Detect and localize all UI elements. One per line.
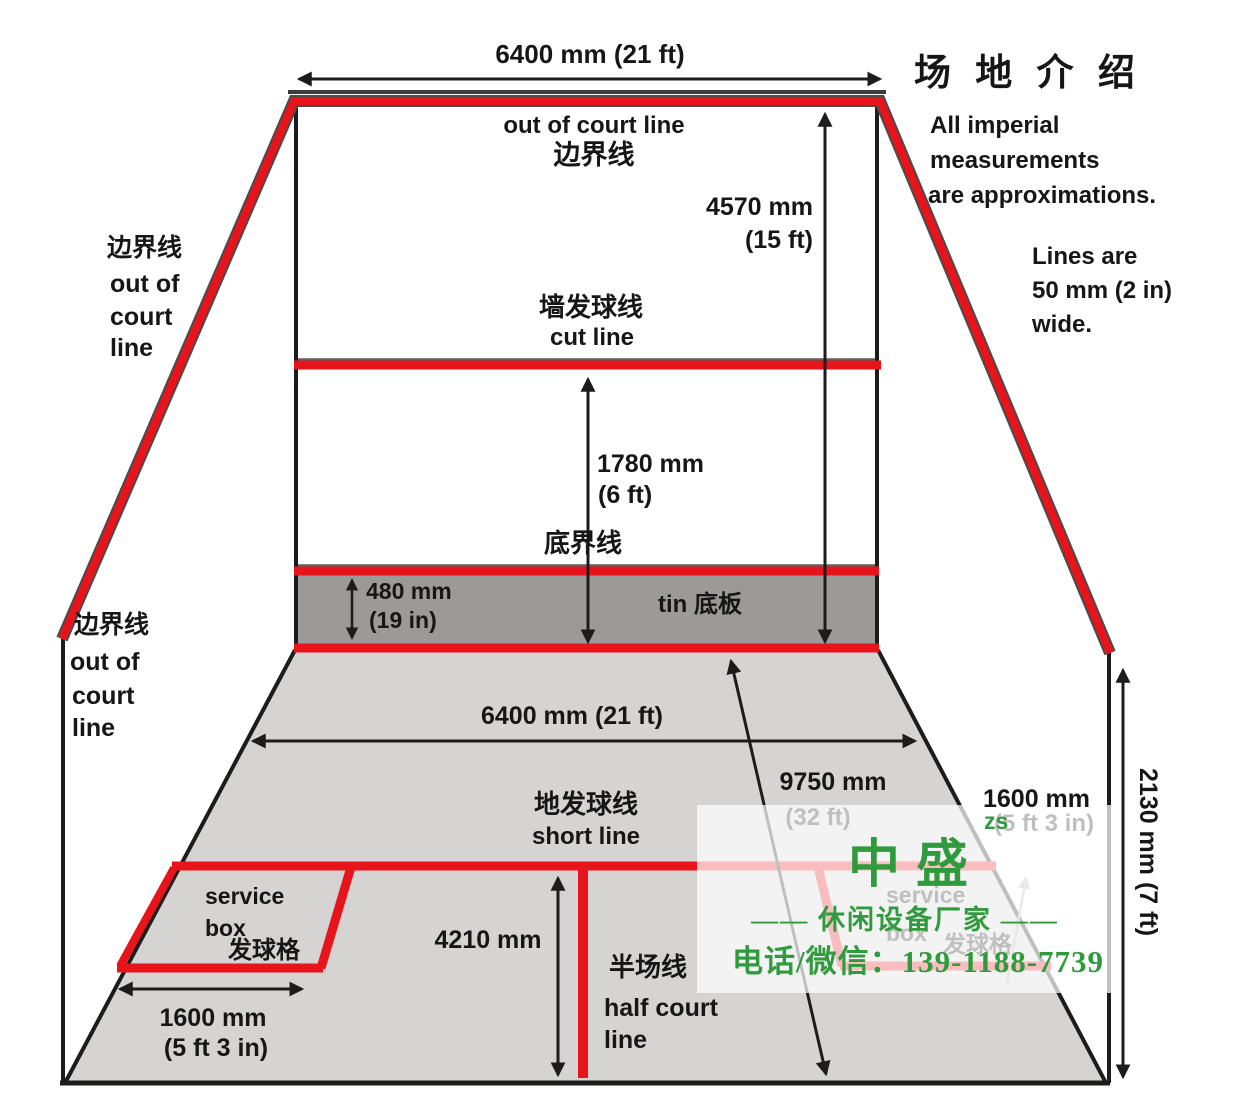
side-label-upper-1: out of [110, 270, 179, 299]
side-label-lower-zh: 边界线 [74, 611, 149, 640]
service-box-label-zh: 发球格 [228, 937, 300, 965]
note-lines-3: wide. [1032, 311, 1092, 339]
cut-line-label-zh: 墙发球线 [539, 293, 643, 323]
cut-height-ft: (6 ft) [598, 481, 652, 510]
half-court-label-en1: half court [604, 994, 718, 1023]
note-lines-2: 50 mm (2 in) [1032, 277, 1172, 305]
note-imperial-1: All imperial [930, 112, 1059, 140]
short-line-label-zh: 地发球线 [534, 790, 638, 820]
note-lines-1: Lines are [1032, 243, 1137, 271]
service-box-label-1: service [205, 883, 284, 909]
top-width-label: 6400 mm (21 ft) [495, 40, 684, 70]
out-of-court-line-label-zh: 边界线 [554, 140, 635, 171]
cut-line-label-en: cut line [550, 324, 634, 352]
side-label-upper-zh: 边界线 [107, 234, 182, 263]
watermark-slogan: —— 休闲设备厂家 —— [751, 898, 1059, 937]
side-label-upper-3: line [110, 334, 153, 363]
page-title: 场 地 介 绍 [914, 52, 1142, 95]
half-court-label-zh: 半场线 [609, 953, 687, 983]
wall-height-mm: 4570 mm [695, 193, 813, 222]
half-court-label-en2: line [604, 1026, 647, 1055]
side-label-lower-1: out of [70, 648, 139, 677]
floor-width-label: 6400 mm (21 ft) [481, 702, 663, 731]
side-label-lower-2: court [72, 682, 135, 711]
back-wall-height-label: 2130 mm (7 ft) [1133, 768, 1162, 936]
tin-label: tin 底板 [658, 591, 742, 619]
back-length-label: 4210 mm [434, 926, 541, 955]
squash-court-diagram-page: 6400 mm (21 ft) 场 地 介 绍 All imperial mea… [0, 0, 1248, 1112]
tin-height-mm: 480 mm [366, 578, 452, 604]
out-of-court-line-label-en: out of court line [503, 112, 684, 140]
watermark-phone: 电话/微信：139-1188-7739 [732, 936, 1104, 981]
short-line-label-en: short line [532, 823, 640, 851]
side-label-upper-2: court [110, 303, 173, 332]
court-length-mm: 9750 mm [779, 768, 886, 797]
cut-height-mm: 1780 mm [597, 450, 704, 479]
service-box-width-ft: (5 ft 3 in) [164, 1034, 268, 1063]
wall-height-ft: (15 ft) [695, 226, 813, 255]
watermark-brand: 中盛 [848, 822, 984, 897]
note-imperial-2: measurements [930, 147, 1099, 175]
service-box-width-mm: 1600 mm [159, 1004, 266, 1033]
watermark-brand-sub: zs [984, 808, 1008, 835]
board-line-label-zh: 底界线 [544, 529, 622, 559]
note-imperial-3: are approximations. [928, 182, 1156, 210]
side-label-lower-3: line [72, 714, 115, 743]
tin-height-in: (19 in) [369, 607, 437, 633]
